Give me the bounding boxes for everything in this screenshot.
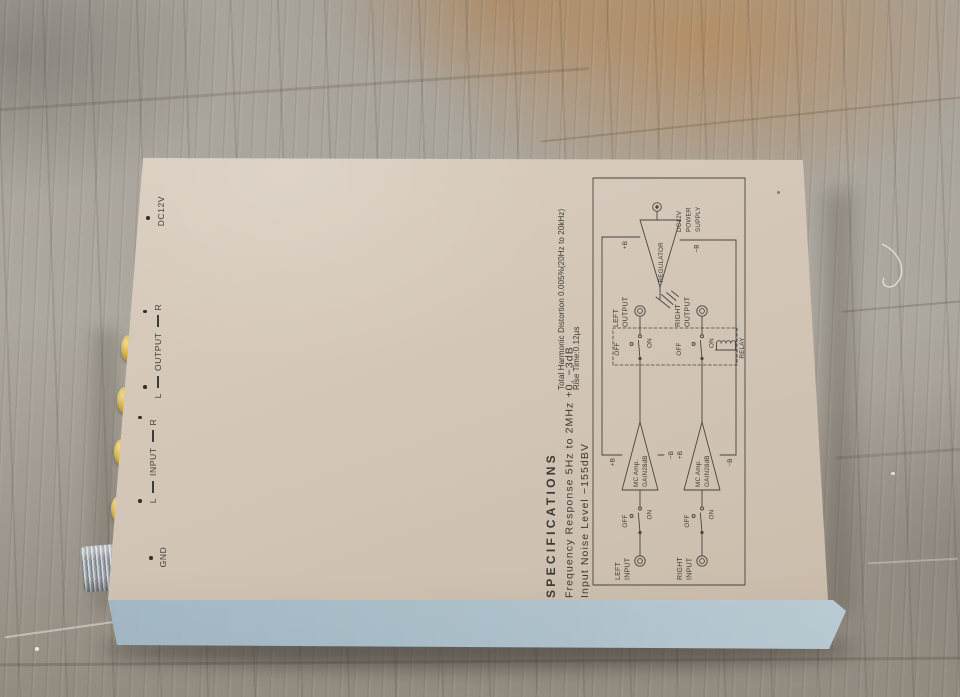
input-r-text: R — [148, 419, 158, 426]
input-panel-label: L INPUT R — [136, 405, 166, 517]
spec-input-noise: Input Noise Level −155dBV — [579, 443, 591, 598]
dust-speck — [777, 191, 780, 194]
output-r-text: R — [153, 304, 163, 311]
left-output-label: OUTPUT — [623, 296, 630, 327]
terminal-dot-icon — [146, 217, 150, 221]
power-rails — [602, 237, 736, 455]
spec-thd: Total Harmonic Distortion 0.005%(20Hz to… — [557, 209, 566, 390]
power-supply-label: DC12V — [676, 210, 683, 232]
terminal-dot-icon — [138, 416, 142, 420]
dash-line — [157, 315, 158, 327]
dash-line — [157, 376, 158, 388]
terminal-dot-icon — [143, 310, 147, 314]
right-input-label: RIGHT — [677, 557, 684, 581]
switch-off-label: OFF — [676, 342, 683, 355]
switch-off-label: OFF — [684, 514, 691, 527]
output-panel-label: L OUTPUT R — [141, 301, 171, 401]
spec-rise-time: Rise Time:0.12μs — [572, 326, 581, 390]
output-l-text: L — [153, 393, 163, 398]
switch-off-label: OFF — [614, 342, 621, 355]
device-shadow — [826, 190, 852, 620]
right-input-label: INPUT — [687, 557, 694, 580]
minus-b-label: −B — [668, 451, 675, 459]
regulator-label: REGULATOR — [658, 242, 665, 283]
plus-b-label: +B — [622, 241, 629, 249]
terminal-dot-icon — [149, 557, 153, 561]
dash-line — [152, 430, 153, 442]
circuit-diagram: SPECIFICATIONS Frequency Response 5Hz to… — [538, 170, 750, 600]
hair-strand — [862, 238, 932, 308]
amp-label: MC Amp. — [695, 460, 702, 487]
switch-on-label: ON — [647, 338, 654, 348]
switch-on-label: ON — [709, 338, 716, 348]
switch-on-label: ON — [709, 509, 716, 519]
terminal-dot-icon — [143, 386, 147, 390]
amp-gain-label: GAIN28dB — [704, 455, 711, 487]
gnd-text: GND — [158, 547, 168, 568]
relay-coil-icon — [716, 341, 736, 350]
left-output-label: LEFT — [613, 308, 620, 327]
dc12v-text: DC12V — [156, 196, 166, 226]
switch-on-label: ON — [647, 509, 654, 519]
minus-b-label: −B — [727, 458, 734, 466]
right-output-label: OUTPUT — [685, 296, 692, 327]
amp-gain-label: GAIN28dB — [642, 455, 649, 487]
terminal-dot-icon — [138, 500, 142, 504]
input-text: INPUT — [148, 447, 158, 476]
output-text: OUTPUT — [153, 332, 163, 371]
left-channel — [602, 306, 664, 566]
minus-b-label: −B — [694, 244, 701, 252]
right-output-label: RIGHT — [675, 304, 682, 328]
relay-label: RELAY — [739, 337, 746, 359]
amp-label: MC Amp. — [633, 460, 640, 487]
plus-b-label: +B — [677, 451, 684, 459]
diagram-frame — [593, 178, 745, 585]
printed-panel-artwork: SPECIFICATIONS Frequency Response 5Hz to… — [538, 170, 750, 600]
gnd-panel-label: GND — [149, 539, 175, 575]
dash-line — [152, 481, 153, 493]
photo-scene: SPECIFICATIONS Frequency Response 5Hz to… — [0, 0, 960, 697]
left-input-label: LEFT — [615, 561, 622, 580]
spec-title: SPECIFICATIONS — [544, 452, 558, 598]
dc12v-panel-label: DC12V — [145, 189, 175, 233]
power-supply-label: POWER — [686, 207, 693, 232]
dust-speck — [891, 472, 895, 475]
switch-off-label: OFF — [622, 514, 629, 527]
input-l-text: L — [148, 498, 158, 503]
relay-dashed-box — [613, 328, 737, 365]
plus-b-label: +B — [610, 458, 617, 466]
left-input-label: INPUT — [625, 557, 632, 580]
power-supply-label: SUPPLY — [695, 206, 702, 232]
dust-speck — [35, 647, 39, 651]
